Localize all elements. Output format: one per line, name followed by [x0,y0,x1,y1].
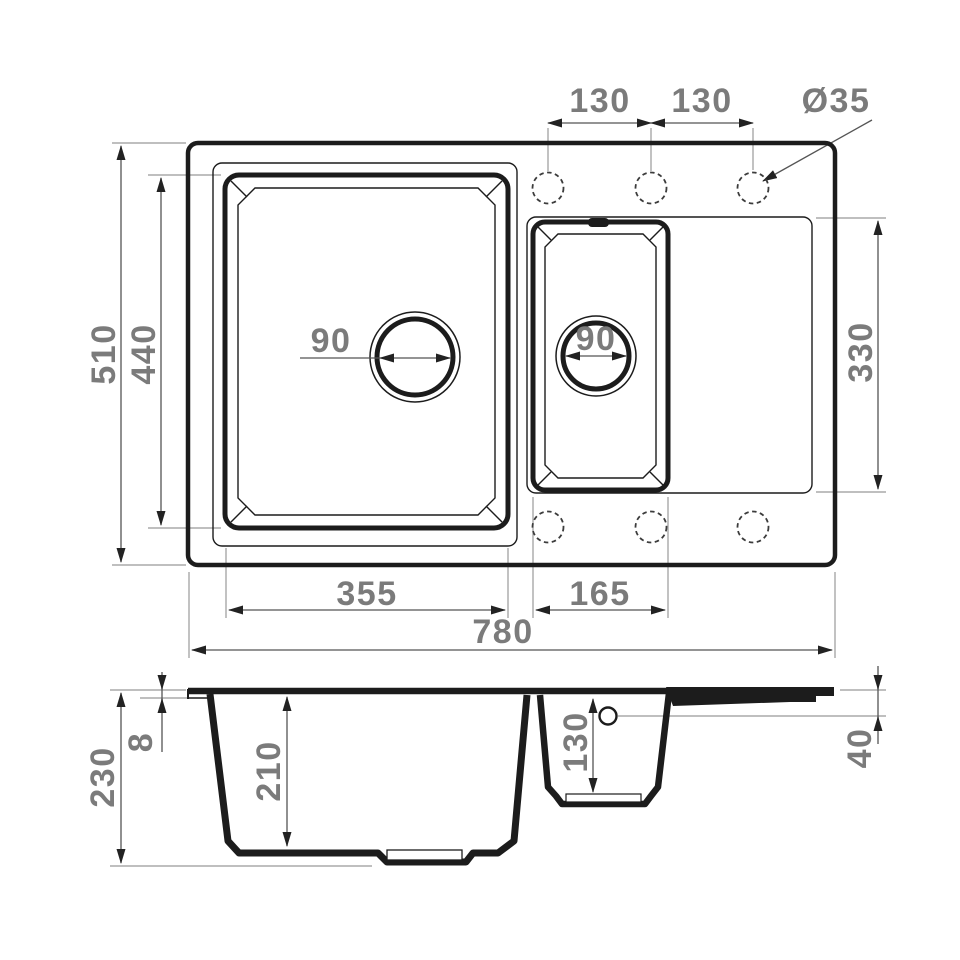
main-bowl-rim [225,175,508,528]
tap-hole-top-1 [533,173,564,204]
section-view: 230 8 210 130 40 [84,666,886,866]
tap-diameter-leader [763,120,872,181]
tap-holes [533,173,769,543]
dim-overall-depth: 510 [85,323,123,384]
tap-hole-bottom-2 [636,512,667,543]
dim-small-bowl-depth-section: 130 [557,711,595,772]
dim-tap-spacing-left: 130 [569,82,630,120]
tap-hole-bottom-1 [533,512,564,543]
main-bowl-bottom [238,188,495,515]
dim-rim-thickness: 8 [122,732,160,752]
section-drainboard [666,687,834,706]
dim-overflow-offset: 40 [841,728,879,769]
section-main-drain-flange [387,850,462,860]
sink-outer-edge [188,143,835,565]
dim-main-bowl-depth: 440 [125,323,163,384]
top-view-dimension-lines [112,120,886,658]
dim-tap-spacing-right: 130 [671,82,732,120]
dim-main-bowl-width: 355 [336,575,397,613]
tap-hole-bottom-3 [738,512,769,543]
dim-main-bowl-depth-section: 210 [250,740,288,801]
tap-hole-top-2 [636,173,667,204]
tap-hole-top-3 [738,173,769,204]
dim-main-drain: 90 [311,322,352,360]
drawing-canvas: 130 130 Ø35 510 440 90 90 330 355 165 78… [0,0,960,960]
top-view: 130 130 Ø35 510 440 90 90 330 355 165 78… [85,82,886,658]
dim-small-bowl-width: 165 [569,575,630,613]
small-bowl-overflow-slot [588,218,609,227]
section-overflow-hole [600,708,617,725]
main-bowl-corner-bevels [231,181,502,522]
section-dimension-labels: 230 8 210 130 40 [84,711,879,807]
main-bowl-surround [213,163,517,546]
sink-dimension-drawing: 130 130 Ø35 510 440 90 90 330 355 165 78… [0,0,960,960]
dim-overall-height: 230 [84,746,122,807]
dim-small-drain: 90 [576,320,617,358]
dim-drainboard-depth: 330 [842,321,880,382]
dim-tap-diameter: Ø35 [802,82,871,120]
section-small-drain-flange [566,794,641,802]
dim-overall-width: 780 [472,613,533,651]
